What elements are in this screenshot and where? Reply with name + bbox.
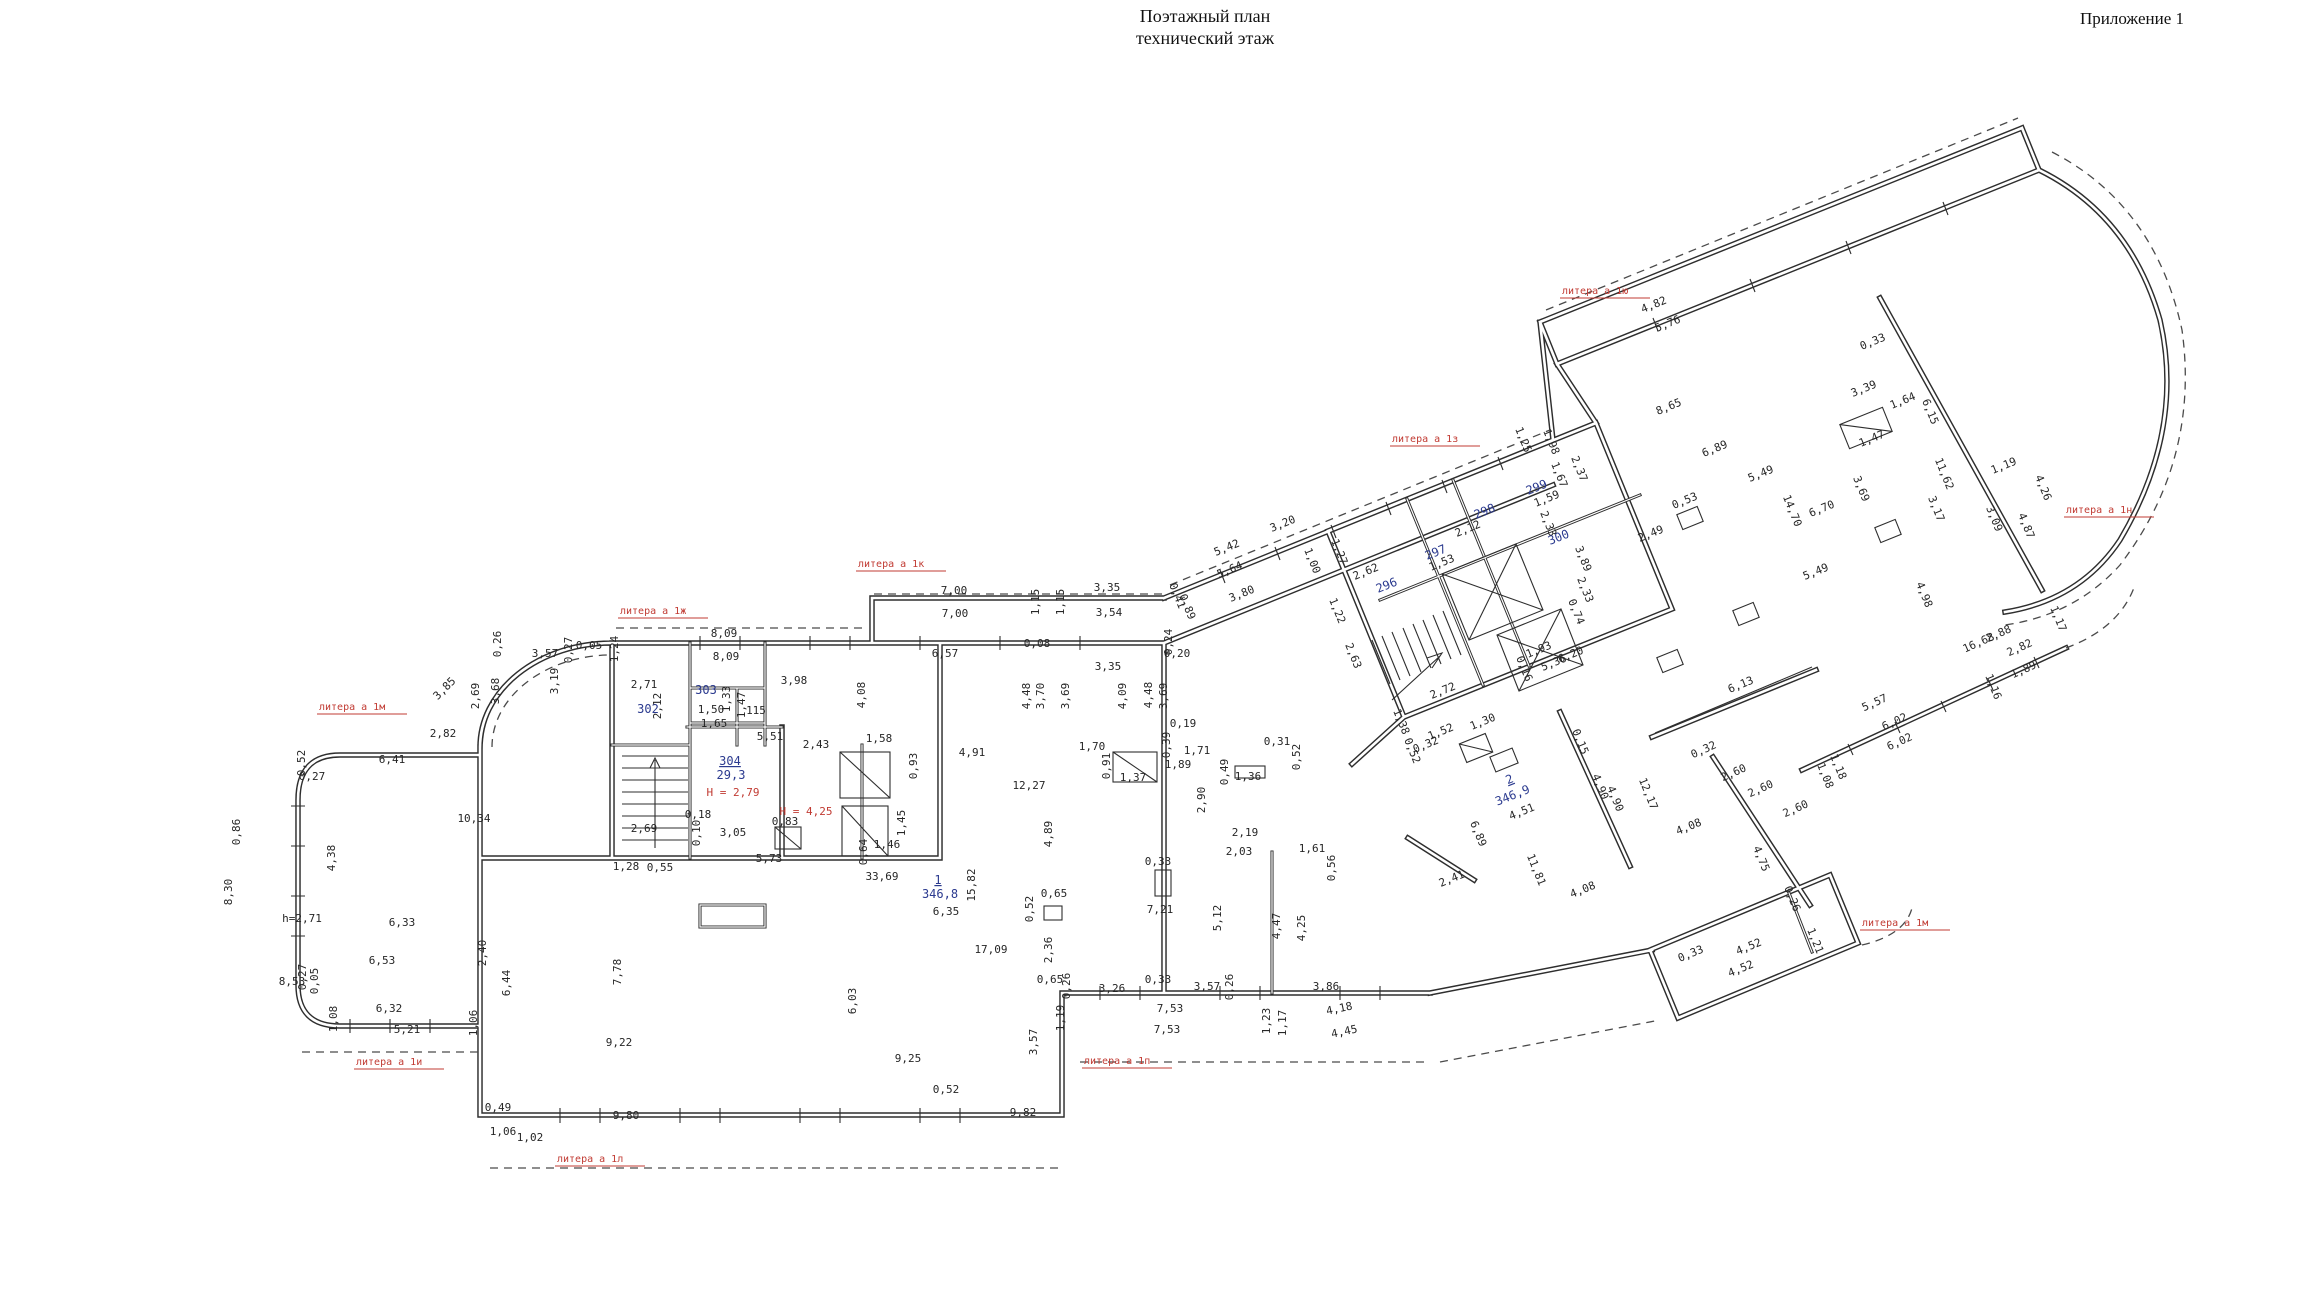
dimension-label: 3,54 [1096, 606, 1123, 619]
litera-annotation: литера а 1м [1862, 918, 1928, 929]
litera-annotation: литера а 1п [1084, 1056, 1150, 1067]
dimension-label: 2,36 [1042, 937, 1055, 964]
dimension-label: 3,05 [720, 826, 747, 839]
dimension-label: 2,69 [631, 822, 658, 835]
dimension-label: 4,48 [1020, 683, 1033, 710]
dimension-label: 6,57 [932, 647, 959, 660]
dimension-label: 1,17 [2047, 604, 2069, 633]
dimension-label: 2,82 [2005, 636, 2034, 659]
dimension-label: 9,22 [606, 1036, 633, 1049]
dimension-label: 5,51 [757, 730, 784, 743]
dimension-label: 1,70 [1079, 740, 1106, 753]
dimension-label: 1,15 [1054, 589, 1067, 616]
dimension-label: 6,89 [1700, 438, 1729, 460]
dimension-label: 1,38 [1390, 707, 1412, 736]
dimension-label: 1,19 [1989, 455, 2018, 477]
dimension-label: 0,26 [1223, 974, 1236, 1001]
dimension-label: 7,21 [1147, 903, 1174, 916]
dimension-label: 1,36 [1235, 770, 1262, 783]
dimension-label: 4,98 [1913, 580, 1935, 609]
dimension-label: 2,63 [1342, 641, 1364, 670]
dimension-label: 3,69 [1059, 683, 1072, 710]
dimension-label: 3,17 [1925, 494, 1947, 523]
dimension-label: 0,83 [772, 815, 799, 828]
dimension-label: 0,18 [685, 808, 712, 821]
dimension-label: 4,90 [1604, 784, 1626, 813]
dimension-label: 4,91 [959, 746, 986, 759]
dimension-label: 6,20 [1556, 644, 1585, 666]
dimension-label: 7,53 [1154, 1023, 1181, 1036]
dimension-label: 0,39 [1160, 732, 1173, 759]
dimension-label: 0,64 [857, 838, 870, 865]
dimension-label: 1,00 [1301, 546, 1323, 575]
page-title-line1: Поэтажный план [1140, 6, 1271, 26]
dimension-label: 1,27 [1328, 537, 1350, 566]
dimension-label: 3,57 [532, 647, 559, 660]
dimension-label: 6,70 [1807, 498, 1836, 520]
dimension-label: 1,65 [701, 717, 728, 730]
dimension-label: 0,53 [1670, 490, 1699, 512]
dimension-label: 5,49 [1746, 463, 1775, 485]
dimension-label: 3,35 [1095, 660, 1122, 673]
dimension-label: 6,89 [1467, 819, 1489, 848]
dimension-label: 3,39 [1849, 378, 1878, 400]
dimension-labels-layer: 3,852,826,410,520,273,573,190,270,050,26… [222, 286, 2154, 1166]
dimension-label: 1,22 [1326, 596, 1348, 625]
dimension-label: 0,27 [299, 770, 326, 783]
annex-label: Приложение 1 [2080, 9, 2184, 28]
dimension-label: 1,15 [1029, 589, 1042, 616]
litera-annotation: литера а 1н [2066, 505, 2132, 516]
dimension-label: 2,19 [1232, 826, 1259, 839]
dimension-label: 1,64 [1888, 390, 1918, 412]
dimension-label: 0,26 [491, 631, 504, 658]
dimension-label: 1,28 [613, 860, 640, 873]
litera-annotation: литера а 1ж [620, 606, 686, 617]
dimension-label: 0,65 [1041, 887, 1068, 900]
dimension-label: 4,52 [1726, 958, 1755, 980]
dimension-label: 3,68 [489, 678, 502, 705]
room-number: 298 [1472, 501, 1497, 522]
dimension-label: 1,89 [2009, 658, 2038, 681]
dimension-label: 1,46 [874, 838, 901, 851]
dimension-label: 1,17 [1276, 1010, 1289, 1037]
dimension-label: 9,80 [613, 1109, 640, 1122]
dimension-label: 4,45 [1330, 1022, 1359, 1040]
dimension-label: 0,08 [1024, 637, 1051, 650]
dimension-label: 3,09 [1983, 504, 2005, 533]
dimension-label: 0,93 [907, 753, 920, 780]
dimension-label: 4,52 [1734, 936, 1763, 958]
dimension-label: 0,33 [1145, 973, 1172, 986]
dimension-label: h=2,71 [282, 912, 322, 925]
room-number: 303 [695, 683, 717, 697]
dimension-label: 9,82 [1010, 1106, 1037, 1119]
walls [298, 128, 2167, 1115]
dimension-label: 0,55 [647, 861, 674, 874]
dimension-label: 3,69 [1850, 474, 1872, 503]
dimension-label: 1,08 [327, 1006, 340, 1033]
dimension-label: 7,00 [941, 584, 968, 597]
dimension-label: 4,08 [1568, 879, 1597, 901]
dimension-label: 2,60 [1719, 761, 1748, 784]
dimension-label: 2,40 [476, 940, 489, 967]
dimension-label: 4,82 [1639, 294, 1668, 316]
dimension-label: 2,41 [1437, 868, 1466, 890]
dimension-label: 2,90 [1195, 787, 1208, 814]
dimension-label: 5,49 [1801, 561, 1830, 583]
dimension-label: 3,19 [548, 668, 561, 695]
dimension-label: 0,33 [1858, 331, 1887, 353]
dimension-label: 5,64 [1215, 559, 1245, 581]
dimension-label: 0,86 [230, 819, 243, 846]
dimension-label: 5,73 [756, 852, 783, 865]
dimension-label: 1,61 [1299, 842, 1326, 855]
litera-annotation: литера а 1ю [1562, 286, 1628, 297]
dimension-label: 6,33 [389, 916, 416, 929]
dimension-label: 4,51 [1507, 801, 1536, 823]
dimension-label: 9,25 [895, 1052, 922, 1065]
dimension-label: 4,26 [2032, 473, 2054, 502]
dimension-label: 17,09 [974, 943, 1007, 956]
dimension-label: 4,25 [1295, 915, 1308, 942]
room-number: 29,3 [717, 768, 746, 782]
dimension-label: 5,57 [1860, 691, 1889, 714]
dimension-label: 6,32 [376, 1002, 403, 1015]
dimension-label: 0,33 [1145, 855, 1172, 868]
dimension-label: 14,70 [1780, 493, 1804, 529]
litera-annotation: литера а 1к [858, 559, 924, 570]
dimension-label: 7,00 [942, 607, 969, 620]
dimension-label: 7,78 [611, 959, 624, 986]
dimension-label: 12,17 [1636, 776, 1660, 812]
dimension-label: 1,47 [1857, 428, 1886, 450]
dimension-label: 1,06 [467, 1010, 480, 1037]
floor-plan-page: Поэтажный план технический этаж Приложен… [0, 0, 2304, 1290]
dimension-label: 4,87 [2015, 511, 2037, 540]
dimension-label: 11,81 [1524, 852, 1548, 888]
dimension-label: 11,62 [1932, 456, 1956, 492]
dimension-label: 6,35 [933, 905, 960, 918]
dimension-label: 2,12 [651, 693, 664, 720]
dimension-label: 1,23 [1260, 1008, 1273, 1035]
dimension-label: 1,37 [1120, 771, 1147, 784]
dimension-label: 5,21 [394, 1023, 421, 1036]
dimension-label: 3,26 [1099, 982, 1126, 995]
dimension-label: 3,35 [1094, 581, 1121, 594]
dimension-label: 6,41 [379, 753, 406, 766]
dimension-label: 0,24 [1162, 628, 1175, 655]
dimension-label: 4,47 [1270, 913, 1283, 940]
dimension-label: 0,26 [1060, 973, 1073, 1000]
dimension-label: 1,71 [1184, 744, 1211, 757]
litera-annotation: литера а 1з [1392, 434, 1458, 445]
floor-plan-canvas: Поэтажный план технический этаж Приложен… [0, 0, 2304, 1290]
dimension-label: 3,80 [1227, 583, 1256, 605]
dimension-label: 8,65 [1654, 396, 1683, 418]
dimension-label: 6,53 [369, 954, 396, 967]
dimension-label: 6,02 [1885, 730, 1914, 753]
dimension-label: 4,08 [1674, 816, 1703, 838]
dimension-label: 0,31 [1264, 735, 1291, 748]
dimension-label: 8,09 [713, 650, 740, 663]
room-number: 1 [934, 873, 941, 887]
dimension-label: 4,08 [855, 682, 868, 709]
room-number: 346,8 [922, 887, 958, 901]
litera-annotation: литера а 1м [319, 702, 385, 713]
litera-annotation: литера а 1л [557, 1154, 623, 1165]
dimension-label: 3,69 [1157, 683, 1170, 710]
dimension-label: 1,19 [1054, 1005, 1067, 1032]
dimension-label: 0,56 [1325, 855, 1338, 882]
dimension-label: 2,88 [1984, 622, 2013, 645]
dimension-label: 3,70 [1034, 683, 1047, 710]
dimension-label: 0,27 [562, 637, 575, 664]
dimension-label: 0,49 [485, 1101, 512, 1114]
dimension-label: 0,52 [1023, 896, 1036, 923]
dimension-label: 3,89 [1572, 544, 1594, 573]
dimension-label: 4,48 [1142, 682, 1155, 709]
room-number: 304 [719, 754, 741, 768]
dimension-label: 4,89 [1042, 821, 1055, 848]
dimension-label: 2,69 [469, 683, 482, 710]
dimension-label: 3,98 [781, 674, 808, 687]
dimension-label: 2,82 [430, 727, 457, 740]
dimension-label: 5,76 [1653, 313, 1682, 335]
dimension-label: 2,71 [631, 678, 658, 691]
dimension-label: 4,75 [1750, 844, 1772, 873]
dimension-label: 0,49 [1218, 759, 1231, 786]
height-annotation: Н = 2,79 [707, 786, 760, 799]
dimension-label: 0,91 [1100, 753, 1113, 780]
dimension-label: 0,19 [1170, 717, 1197, 730]
dimension-label: 2,60 [1746, 777, 1775, 800]
dimension-label: 3,57 [1194, 980, 1221, 993]
dimension-label: 3,57 [1027, 1029, 1040, 1056]
dimension-label: 0,33 [1676, 943, 1705, 965]
dimension-label: 0,52 [1290, 744, 1303, 771]
dimension-label: 10,34 [457, 812, 490, 825]
dimension-label: 115 [746, 704, 766, 717]
dimension-label: 7,53 [1157, 1002, 1184, 1015]
dimension-label: 1,45 [895, 810, 908, 837]
dimension-label: 3,20 [1268, 513, 1297, 535]
dimension-label: 0,05 [308, 968, 321, 995]
dimension-label: 8,09 [711, 627, 738, 640]
dimension-label: 6,44 [500, 969, 513, 996]
dimension-label: 1,30 [1468, 711, 1497, 733]
dimension-label: 0,05 [576, 639, 603, 652]
dimension-label: 1,02 [517, 1131, 544, 1144]
dimension-label: 3,86 [1313, 980, 1340, 993]
dimension-label: 1,58 [866, 732, 893, 745]
dimension-label: 5,42 [1212, 537, 1241, 559]
dimension-label: 2,60 [1781, 797, 1810, 820]
dimension-label: 5,12 [1211, 905, 1224, 932]
litera-annotation: литера а 1и [356, 1057, 422, 1068]
dimension-label: 15,82 [965, 868, 978, 901]
dimension-label: 4,18 [1325, 999, 1354, 1017]
dimension-label: 2,43 [803, 738, 830, 751]
dimension-label: 6,03 [846, 988, 859, 1015]
dimension-label: 8,30 [222, 879, 235, 906]
dimension-label: 12,27 [1012, 779, 1045, 792]
dimension-label: 1,24 [608, 635, 621, 662]
vent-boxes [775, 407, 1901, 920]
dimension-label: 0,10 [690, 820, 703, 847]
dimension-label: 2,37 [1568, 454, 1590, 483]
dimension-label: 1,06 [490, 1125, 517, 1138]
dimension-label: 1,25 [1512, 425, 1534, 454]
dimension-label: 3,85 [431, 675, 459, 703]
dimension-label: 1,89 [1165, 758, 1192, 771]
dimension-label: 33,69 [865, 870, 898, 883]
dimension-label: 2,03 [1226, 845, 1253, 858]
dimension-label: 0,52 [933, 1083, 960, 1096]
page-title-line2: технический этаж [1136, 28, 1275, 48]
dimension-label: 4,38 [325, 845, 338, 872]
room-number: 2 [1504, 771, 1516, 787]
dimension-label: 4,09 [1116, 683, 1129, 710]
dimension-label: 1,50 [698, 703, 725, 716]
